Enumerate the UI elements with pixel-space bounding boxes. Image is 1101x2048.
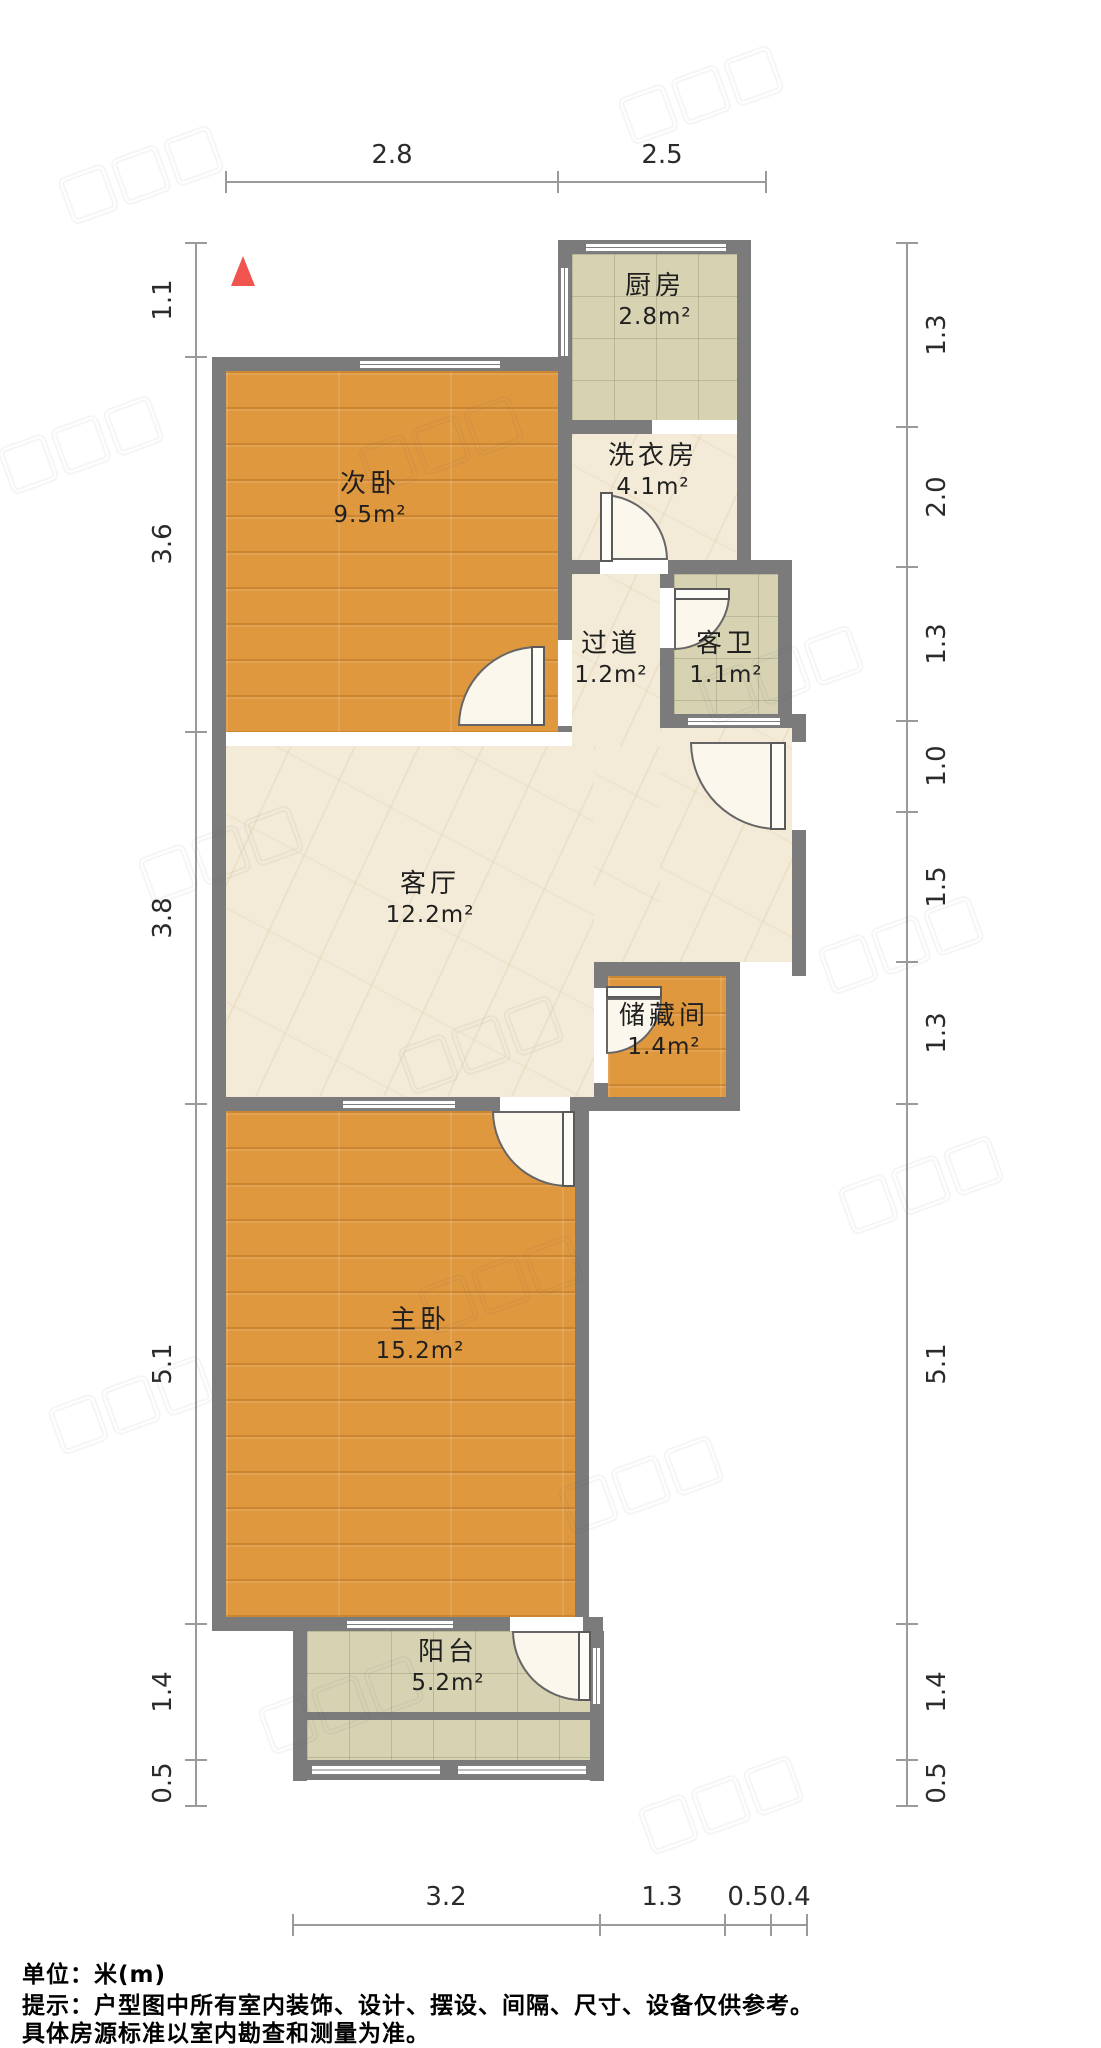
living-label: 客厅 12.2m²	[350, 868, 510, 929]
wall-kitchen-laundry-stub	[572, 420, 652, 434]
watermark	[56, 124, 225, 226]
dim-tick	[185, 731, 207, 733]
dim-top-2: 2.5	[641, 140, 682, 170]
living-area: 12.2m²	[350, 901, 510, 930]
laundry-area: 4.1m²	[578, 473, 728, 502]
balcony-door-leaf	[578, 1631, 591, 1701]
dim-tick	[896, 566, 918, 568]
dim-bottom-1: 3.2	[425, 1882, 466, 1912]
dim-tick	[292, 1914, 294, 1936]
storage-name: 储藏间	[584, 1000, 744, 1033]
dim-tick	[599, 1914, 601, 1936]
dim-tick	[724, 1914, 726, 1936]
watermark	[836, 1134, 1005, 1236]
dim-tick	[896, 242, 918, 244]
dim-tick	[896, 720, 918, 722]
dim-tick	[185, 1805, 207, 1807]
dim-tick	[185, 356, 207, 358]
dim-right-8: 1.4	[922, 1671, 952, 1712]
dim-top-1: 2.8	[371, 140, 412, 170]
floorplan-canvas: 厨房 2.8m² 洗衣房 4.1m² 次卧 9.5m² 过道 1.2m² 客卫 …	[0, 0, 1101, 2048]
window-living-master	[343, 1099, 455, 1110]
kitchen-label: 厨房 2.8m²	[580, 270, 730, 331]
window-kitchen-top	[586, 242, 726, 253]
bedroom2-door-leaf	[531, 646, 545, 726]
window-bedroom2	[360, 359, 500, 370]
dim-right-6: 1.3	[922, 1012, 952, 1053]
dim-left-2: 3.6	[148, 523, 178, 564]
watermark	[816, 894, 985, 996]
dim-line-bottom	[293, 1924, 807, 1926]
watermark	[636, 1754, 805, 1856]
dim-tick	[185, 1103, 207, 1105]
storage-area: 1.4m²	[584, 1033, 744, 1062]
master-area: 15.2m²	[340, 1337, 500, 1366]
dim-tick	[770, 1914, 772, 1936]
dim-tick	[896, 1623, 918, 1625]
dim-tick	[225, 171, 227, 193]
dim-tick	[765, 171, 767, 193]
opening-balcony-door	[510, 1617, 583, 1631]
window-master-balcony	[347, 1619, 453, 1630]
watermark	[616, 44, 785, 146]
north-arrow-icon	[231, 256, 255, 286]
watermark	[0, 394, 166, 496]
laundry-label: 洗衣房 4.1m²	[578, 440, 728, 501]
dim-line-top	[226, 181, 766, 183]
living-floor-right	[594, 746, 660, 962]
dim-tick	[806, 1914, 808, 1936]
opening-entry-door	[792, 742, 806, 830]
wall-kitchen-right	[737, 240, 751, 574]
dim-tick	[557, 171, 559, 193]
wall-left-outer	[212, 357, 226, 1631]
dim-bottom-2: 1.3	[641, 1882, 682, 1912]
dim-tick	[185, 242, 207, 244]
storage-label: 储藏间 1.4m²	[584, 1000, 744, 1061]
wall-laundry-bottom	[558, 560, 792, 574]
dim-left-1: 1.1	[148, 279, 178, 320]
footer-note-line2: 具体房源标准以室内勘查和测量为准。	[22, 2014, 430, 2048]
dim-tick	[896, 1103, 918, 1105]
dim-right-1: 1.3	[922, 314, 952, 355]
opening-laundry-door	[600, 560, 668, 574]
window-balcony-bottom-left	[312, 1764, 440, 1776]
window-balcony-bottom-right	[458, 1764, 586, 1776]
wall-living-master	[212, 1097, 740, 1111]
dim-bottom-4: 0.4	[769, 1882, 810, 1912]
kitchen-name: 厨房	[580, 270, 730, 303]
bathroom-door-leaf	[674, 588, 730, 600]
bedroom2-area: 9.5m²	[300, 501, 440, 530]
watermark	[46, 1354, 215, 1456]
opening-master-door	[500, 1097, 570, 1111]
entry-door-leaf	[770, 742, 786, 830]
dim-right-7: 5.1	[922, 1343, 952, 1384]
dim-line-left	[195, 243, 197, 1806]
wall-storage-top	[594, 962, 740, 976]
dim-line-right	[906, 243, 908, 1806]
dim-tick	[896, 1759, 918, 1761]
master-door-leaf	[562, 1111, 575, 1187]
kitchen-area: 2.8m²	[580, 303, 730, 332]
hallway-name: 过道	[556, 628, 666, 661]
dim-tick	[896, 811, 918, 813]
hallway-area: 1.2m²	[556, 661, 666, 690]
storage-door-leaf	[606, 986, 662, 998]
dim-left-5: 1.4	[148, 1671, 178, 1712]
dim-right-9: 0.5	[922, 1762, 952, 1803]
dim-right-4: 1.0	[922, 745, 952, 786]
dim-right-3: 1.3	[922, 623, 952, 664]
dim-left-6: 0.5	[148, 1762, 178, 1803]
living-name: 客厅	[350, 868, 510, 901]
dim-tick	[185, 1623, 207, 1625]
window-balcony-right	[591, 1648, 602, 1704]
dim-tick	[896, 426, 918, 428]
hallway-label: 过道 1.2m²	[556, 628, 666, 689]
window-kitchen-left	[559, 268, 570, 356]
dim-bottom-3: 0.5	[727, 1882, 768, 1912]
laundry-door-leaf	[600, 492, 613, 562]
dim-tick	[896, 1805, 918, 1807]
laundry-name: 洗衣房	[578, 440, 728, 473]
dim-right-2: 2.0	[922, 476, 952, 517]
footer-unit-line: 单位：米(m)	[22, 1955, 166, 1989]
wall-master-right	[575, 1111, 589, 1631]
dim-tick	[185, 1759, 207, 1761]
